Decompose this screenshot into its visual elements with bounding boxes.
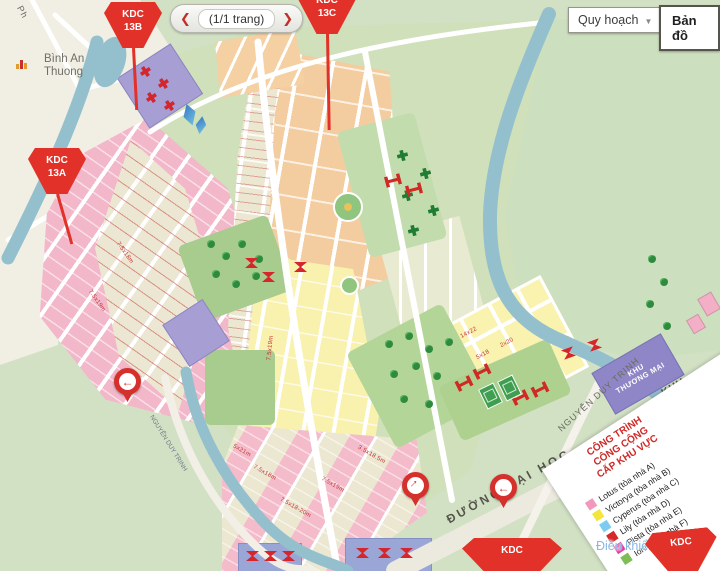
arrow-balloon: ← — [490, 474, 517, 501]
tree-icon — [222, 252, 230, 260]
map-mode-button[interactable]: Bản đồ — [659, 5, 720, 51]
page-indicator: (1/1 trang) — [198, 9, 275, 29]
left-arrow-icon: ← — [495, 479, 512, 496]
place-label-binh-an: Bình An Thuong — [44, 53, 84, 79]
tree-icon — [646, 300, 654, 308]
tree-icon — [445, 338, 453, 346]
building-icon — [686, 314, 706, 335]
arrow-balloon: ← — [402, 472, 429, 499]
marker-tail — [499, 499, 509, 508]
marker-flag: KDC — [462, 538, 562, 571]
tree-icon — [238, 240, 246, 248]
map-canvas[interactable]: 7.5x18m 7.5x18-20m 7.5x19m 5x21m 3.5x18.… — [0, 0, 720, 571]
marker-kdc-13c[interactable]: KDC13C — [298, 0, 356, 130]
park-small — [205, 350, 275, 425]
tree-icon — [433, 372, 441, 380]
tree-icon — [425, 345, 433, 353]
marker-kdc-south[interactable]: KDC — [462, 538, 562, 571]
water-feature-icon — [192, 115, 208, 135]
page-navigator: ❮ (1/1 trang) ❯ — [170, 4, 303, 33]
chevron-down-icon: ▼ — [644, 17, 652, 26]
apartment-block-south2 — [345, 538, 432, 571]
marker-arrow-west[interactable]: ← — [114, 368, 141, 404]
marker-stick — [132, 48, 138, 110]
marker-flag: KDC13B — [104, 2, 162, 48]
marker-kdc-13b[interactable]: KDC13B — [104, 2, 162, 110]
building-icon — [587, 338, 603, 352]
tree-icon — [252, 272, 260, 280]
temple-poi-icon — [16, 60, 27, 69]
road-label-riverside: NGUYỄN DUY TRINH — [148, 414, 188, 473]
tree-icon — [648, 255, 656, 263]
building-icon — [697, 291, 720, 316]
legend-swatch — [620, 553, 632, 565]
arrow-balloon: ← — [114, 368, 141, 395]
tree-icon — [232, 280, 240, 288]
marker-tail — [411, 497, 421, 506]
next-page-button[interactable]: ❯ — [279, 6, 296, 31]
tree-icon — [412, 362, 420, 370]
left-arrow-icon: ← — [119, 373, 136, 390]
marker-stick — [56, 194, 73, 245]
tree-icon — [212, 270, 220, 278]
roundabout — [340, 276, 359, 295]
marker-stick — [326, 34, 331, 130]
tree-icon — [425, 400, 433, 408]
marker-kdc-corner[interactable]: KDC — [644, 526, 720, 571]
marker-flag: KDC13C — [298, 0, 356, 34]
down-right-arrow-icon: ← — [403, 473, 427, 497]
tree-icon — [400, 395, 408, 403]
tree-icon — [385, 340, 393, 348]
tree-icon — [390, 370, 398, 378]
marker-arrow-south2[interactable]: ← — [490, 474, 517, 510]
marker-arrow-south1[interactable]: ← — [402, 472, 429, 508]
layer-dropdown[interactable]: Quy hoạch▼ — [568, 7, 662, 33]
tree-icon — [207, 240, 215, 248]
marker-kdc-13a[interactable]: KDC13A — [28, 148, 86, 246]
roundabout — [333, 192, 363, 222]
tree-icon — [663, 322, 671, 330]
tree-icon — [660, 278, 668, 286]
prev-page-button[interactable]: ❮ — [177, 6, 194, 31]
marker-flag: KDC — [644, 526, 720, 571]
marker-flag: KDC13A — [28, 148, 86, 194]
road-label-nw: Ph — [15, 4, 30, 20]
marker-tail — [123, 393, 133, 402]
tree-icon — [405, 332, 413, 340]
